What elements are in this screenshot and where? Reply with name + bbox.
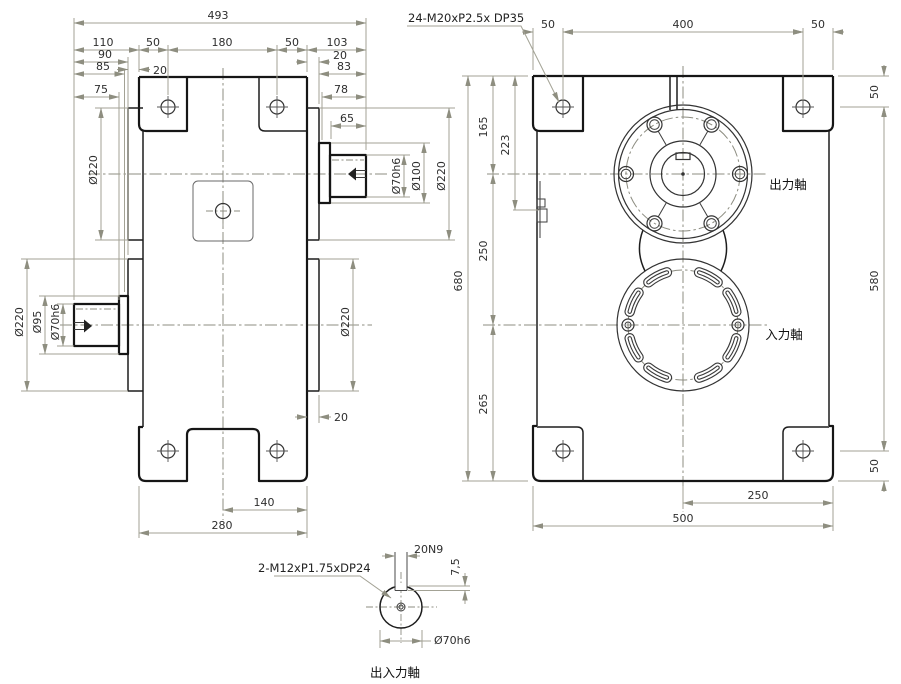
dim-boss-dia-right-bottom: Ø220 (339, 307, 352, 337)
dim-gauge: 223 (499, 135, 512, 156)
dim-out-axis: 165 (477, 117, 490, 138)
dim-half-width: 250 (748, 489, 769, 502)
label-input-shaft: 入力軸 (765, 327, 803, 342)
gearbox-drawing: 493 110 50 180 50 103 90 20 85 83 20 75 … (0, 0, 901, 684)
dim-collar-dia-in: Ø95 (31, 311, 44, 334)
dim-key-depth: 7,5 (449, 558, 462, 576)
label-output-shaft: 出力軸 (769, 177, 807, 192)
dim-height: 680 (452, 271, 465, 292)
dim-foot-half: 140 (254, 496, 275, 509)
dim-boss-step-mid: 20 (334, 411, 348, 424)
dim-edge-right: 50 (811, 18, 825, 31)
dim-shaft-dia-in: Ø70h6 (49, 304, 62, 341)
dim-width: 500 (673, 512, 694, 525)
dim-tab-rear: 50 (285, 36, 299, 49)
dim-83: 83 (337, 60, 351, 73)
dim-detail-shaft-dia: Ø70h6 (434, 634, 471, 647)
dim-tab-front: 50 (146, 36, 160, 49)
dim-in-axis-bottom: 265 (477, 394, 490, 415)
dim-bolt-span-h: 400 (673, 18, 694, 31)
dim-depth: 280 (212, 519, 233, 532)
dim-shaft-dia-out: Ø70h6 (390, 158, 403, 195)
dim-edge-left: 50 (541, 18, 555, 31)
dim-edge-top: 50 (868, 85, 881, 99)
dim-edge-bottom: 50 (868, 459, 881, 473)
tap-note: 2-M12xP1.75xDP24 (258, 561, 371, 575)
dim-key-width: 20N9 (414, 543, 443, 556)
dim-front-ext: 103 (327, 36, 348, 49)
detail-caption: 出入力軸 (370, 665, 420, 680)
dim-boss-dia-right-top: Ø220 (435, 161, 448, 191)
dim-overall-length: 493 (208, 9, 229, 22)
dim-bolt-span-v: 580 (868, 271, 881, 292)
dim-75: 75 (94, 83, 108, 96)
dim-bolt-span: 180 (212, 36, 233, 49)
dim-shaft-len: 65 (340, 112, 354, 125)
dim-tab-offset: 20 (153, 64, 167, 77)
paper-background (0, 0, 901, 684)
dim-boss-dia-left-bottom: Ø220 (13, 307, 26, 337)
dim-collar-dia-out: Ø100 (410, 161, 423, 191)
thread-note: 24-M20xP2.5x DP35 (408, 11, 524, 25)
dim-85: 85 (96, 60, 110, 73)
drawing-canvas: 493 110 50 180 50 103 90 20 85 83 20 75 … (0, 0, 901, 684)
dim-78: 78 (334, 83, 348, 96)
dim-axis-gap: 250 (477, 241, 490, 262)
dim-boss-dia-left-top: Ø220 (87, 155, 100, 185)
